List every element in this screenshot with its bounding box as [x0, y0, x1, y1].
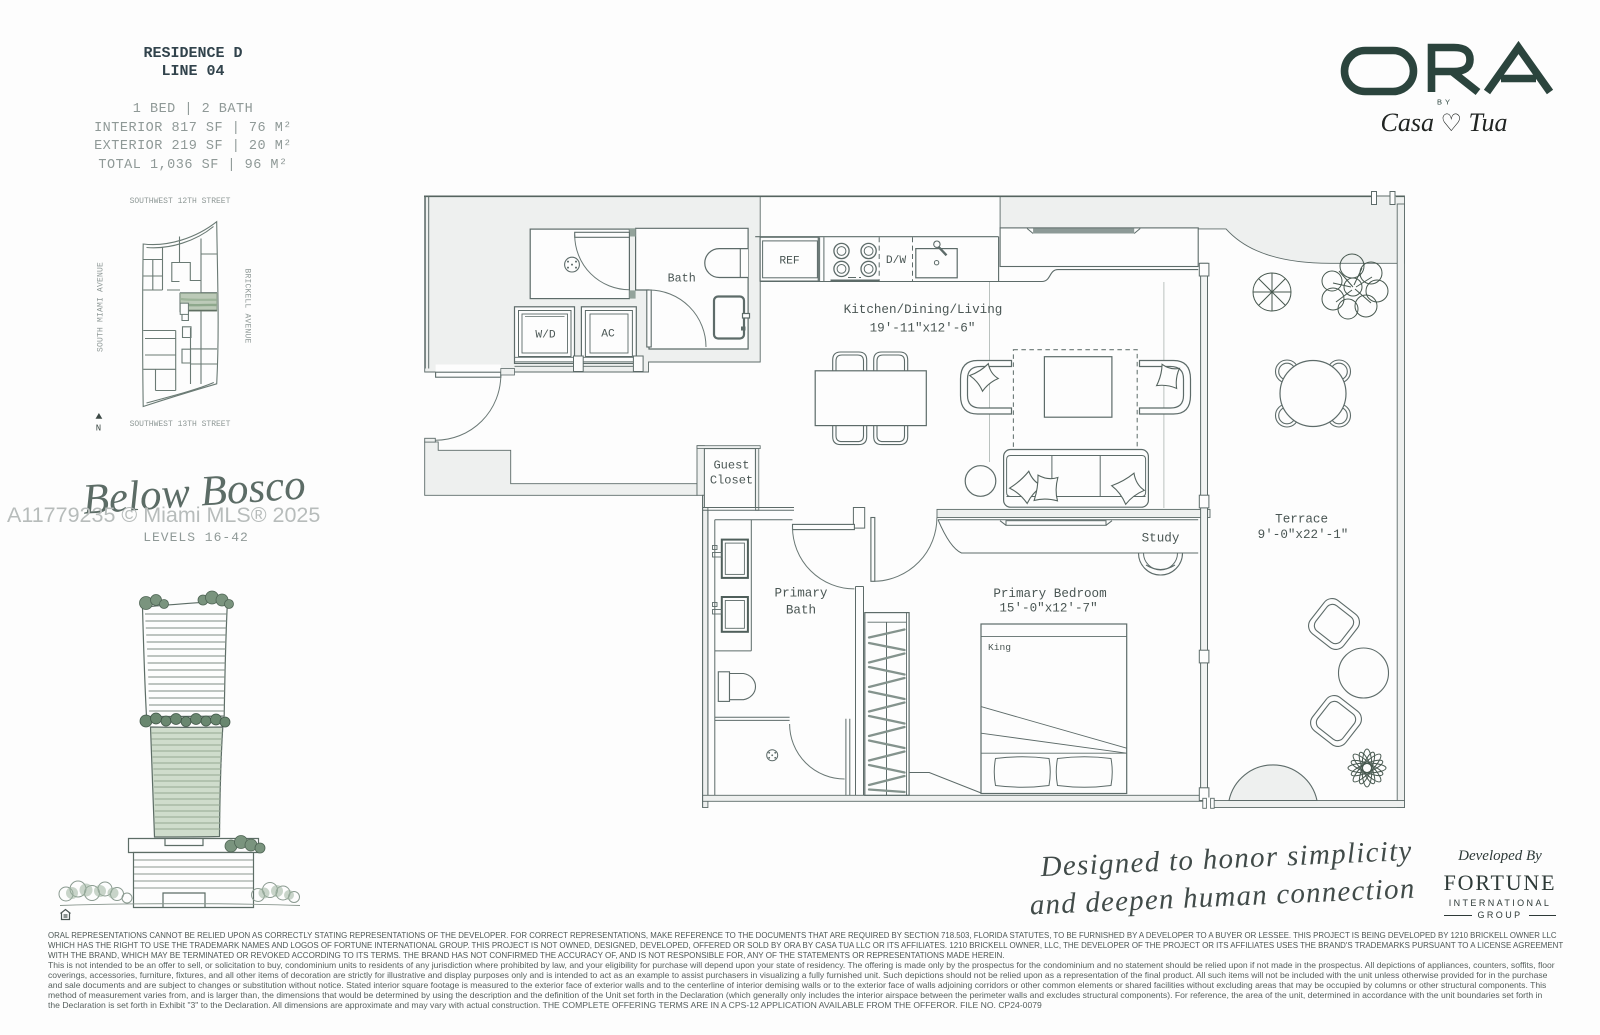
svg-text:Casa ♡ Tua: Casa ♡ Tua [1380, 108, 1507, 137]
svg-text:Closet: Closet [710, 474, 753, 488]
svg-text:AC: AC [601, 329, 615, 341]
svg-text:King: King [988, 642, 1011, 653]
svg-text:19'-11"x12'-6": 19'-11"x12'-6" [870, 322, 976, 336]
svg-text:Bath: Bath [668, 272, 696, 286]
svg-text:REF: REF [779, 256, 799, 268]
svg-text:9'-0"x22'-1": 9'-0"x22'-1" [1258, 528, 1349, 542]
svg-text:Bath: Bath [786, 604, 816, 618]
svg-text:BY: BY [1437, 98, 1453, 107]
svg-text:15'-0"x12'-7": 15'-0"x12'-7" [999, 602, 1097, 616]
svg-text:Terrace: Terrace [1275, 513, 1328, 527]
svg-text:N: N [96, 424, 101, 434]
svg-text:Primary Bedroom: Primary Bedroom [993, 587, 1106, 601]
svg-text:Primary: Primary [775, 587, 828, 601]
svg-text:D/W: D/W [886, 255, 907, 267]
svg-text:Study: Study [1142, 532, 1180, 546]
svg-text:W/D: W/D [535, 330, 556, 342]
svg-text:Kitchen/Dining/Living: Kitchen/Dining/Living [844, 303, 1003, 317]
svg-text:Guest: Guest [713, 459, 749, 473]
